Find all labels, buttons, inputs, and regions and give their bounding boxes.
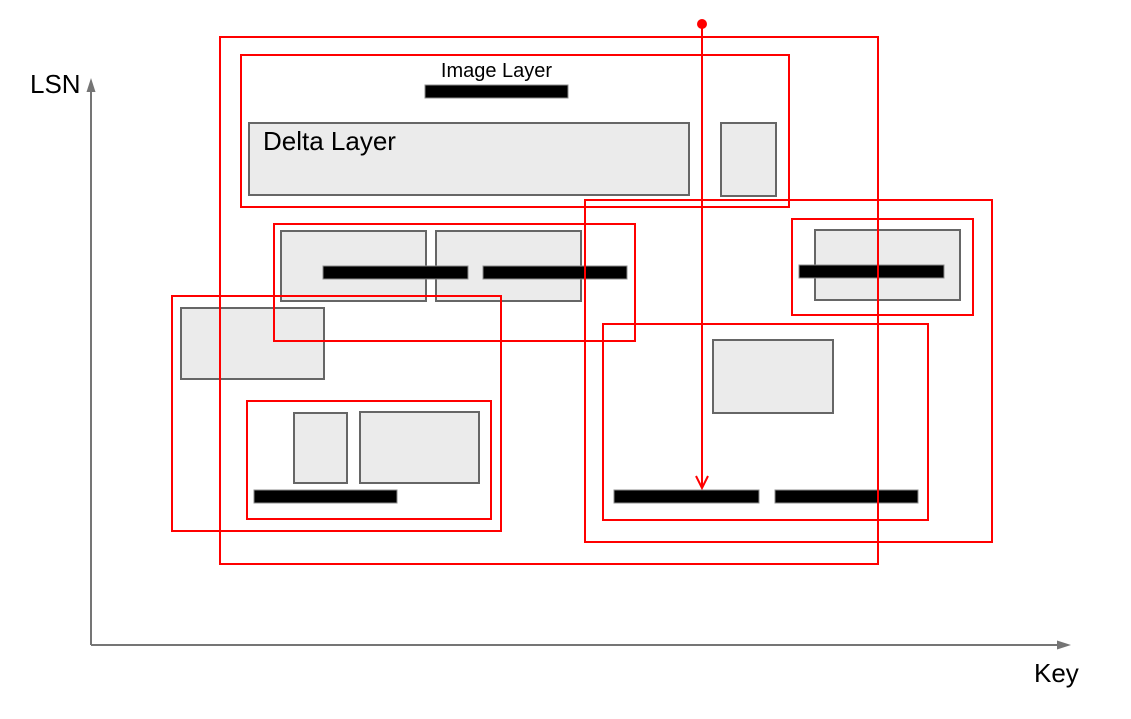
- mid-bar-2: [483, 266, 627, 279]
- bottom-middle-box: [713, 340, 833, 413]
- x-axis-arrowhead-icon: [1057, 641, 1071, 650]
- bottom-left-large-box: [360, 412, 479, 483]
- top-small-box: [721, 123, 776, 196]
- delta-layer-label: Delta Layer: [263, 128, 396, 154]
- right-bar: [799, 265, 944, 278]
- image-layer-label: Image Layer: [425, 61, 568, 81]
- left-box: [181, 308, 324, 379]
- image-layer-bar: [425, 85, 568, 98]
- y-axis-arrowhead-icon: [87, 78, 96, 92]
- diagram-shapes: [0, 0, 1131, 719]
- bottom-mid-bar-2: [775, 490, 918, 503]
- bottom-left-small-box: [294, 413, 347, 483]
- bottom-mid-bar-1: [614, 490, 759, 503]
- mid-bar-1: [323, 266, 468, 279]
- bottom-left-bar: [254, 490, 397, 503]
- y-axis-label: LSN: [30, 71, 81, 97]
- layer-map-diagram: LSN Key Image Layer Delta Layer: [0, 0, 1131, 719]
- x-axis-label: Key: [1034, 660, 1079, 686]
